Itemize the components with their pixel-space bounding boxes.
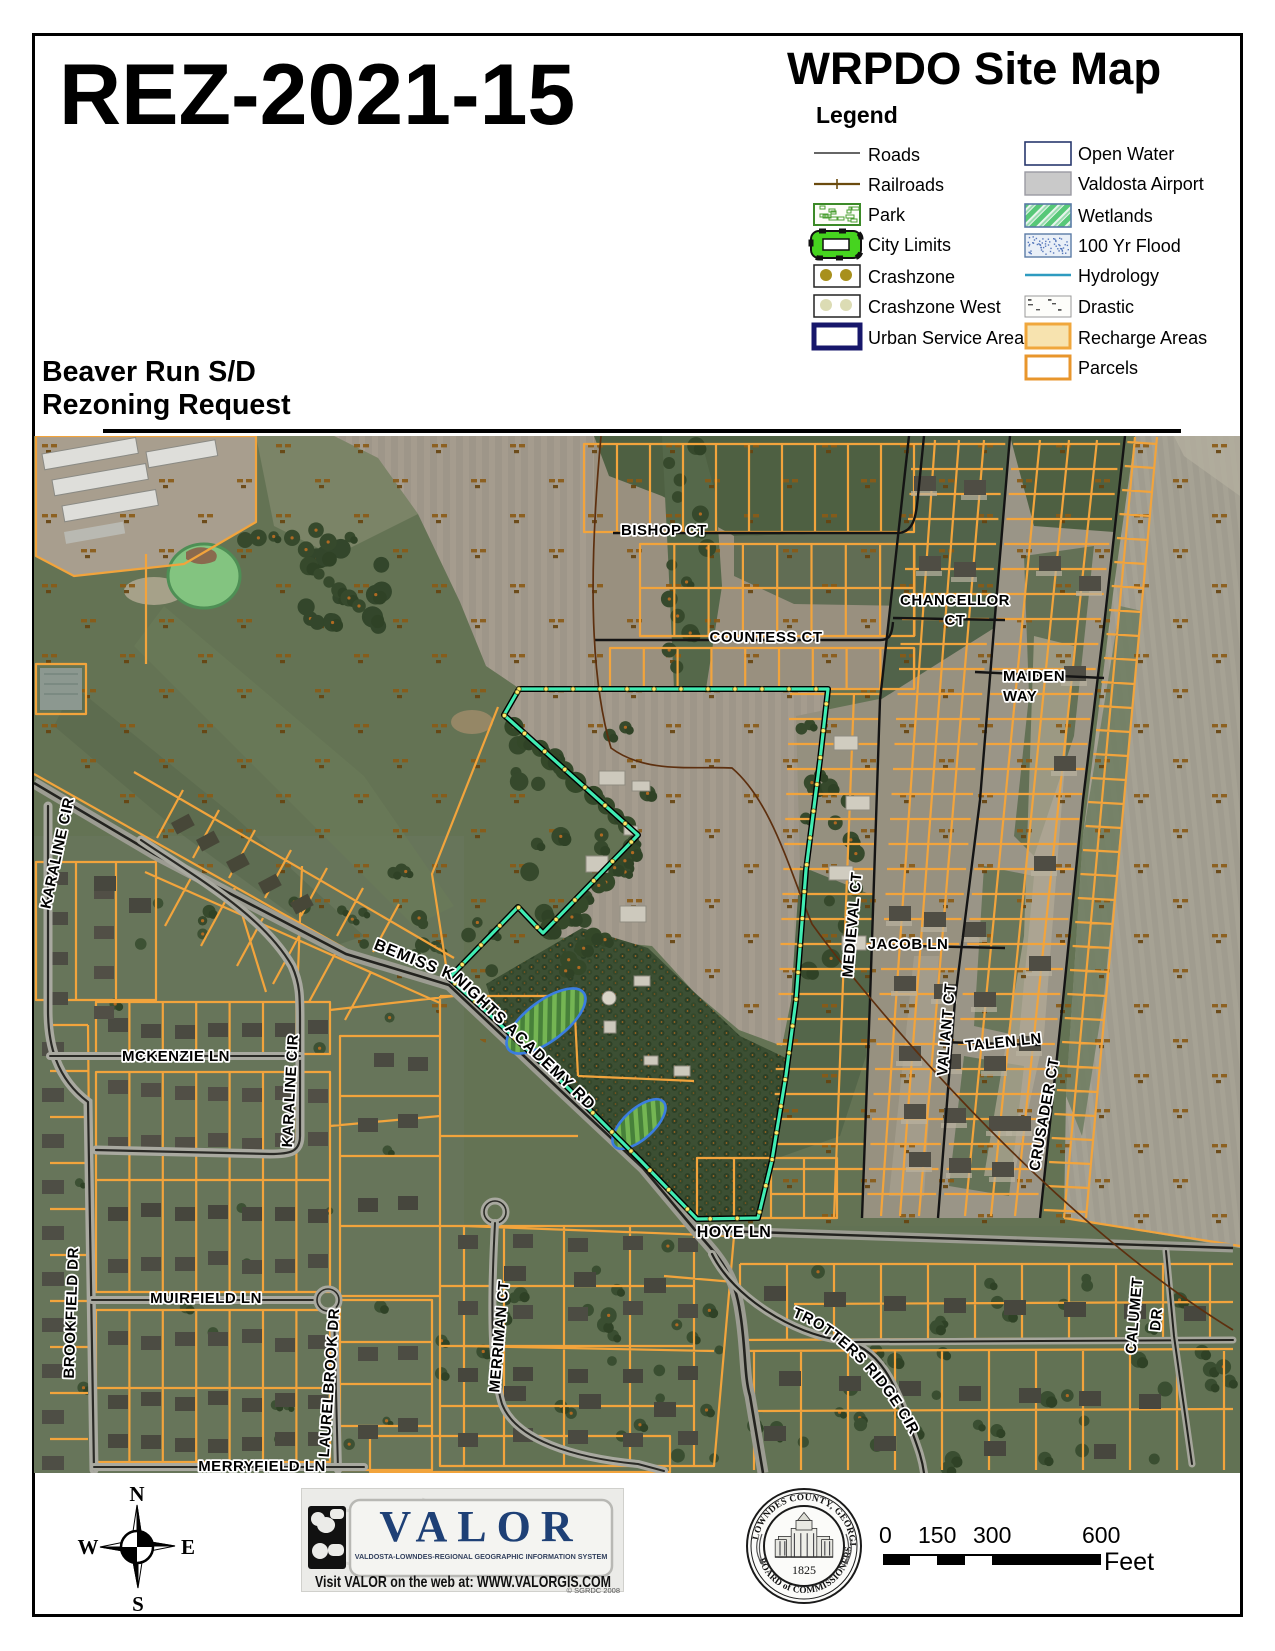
svg-text:MCKENZIE LN: MCKENZIE LN [122, 1048, 230, 1065]
svg-text:© SGRDC 2008: © SGRDC 2008 [567, 1586, 620, 1593]
svg-text:VALOR: VALOR [379, 1502, 582, 1551]
svg-text:BISHOP CT: BISHOP CT [621, 522, 707, 539]
svg-text:CHANCELLOR: CHANCELLOR [900, 592, 1010, 609]
svg-text:S: S [132, 1592, 144, 1616]
svg-text:CT: CT [945, 612, 966, 629]
svg-text:VALDOSTA-LOWNDES-REGIONAL GEOG: VALDOSTA-LOWNDES-REGIONAL GEOGRAPHIC INF… [355, 1552, 608, 1561]
svg-text:WAY: WAY [1003, 688, 1037, 705]
svg-text:MAIDEN: MAIDEN [1003, 668, 1065, 685]
svg-text:MERRYFIELD LN: MERRYFIELD LN [198, 1458, 326, 1473]
svg-text:JACOB LN: JACOB LN [868, 936, 949, 953]
svg-text:MUIRFIELD LN: MUIRFIELD LN [150, 1290, 262, 1307]
svg-text:W: W [78, 1535, 99, 1559]
svg-text:HOYE LN: HOYE LN [697, 1224, 772, 1241]
svg-text:E: E [181, 1535, 195, 1559]
svg-text:COUNTESS CT: COUNTESS CT [709, 629, 822, 646]
svg-text:1825: 1825 [792, 1563, 816, 1577]
svg-text:N: N [129, 1482, 144, 1506]
svg-text:DR: DR [1147, 1308, 1166, 1332]
